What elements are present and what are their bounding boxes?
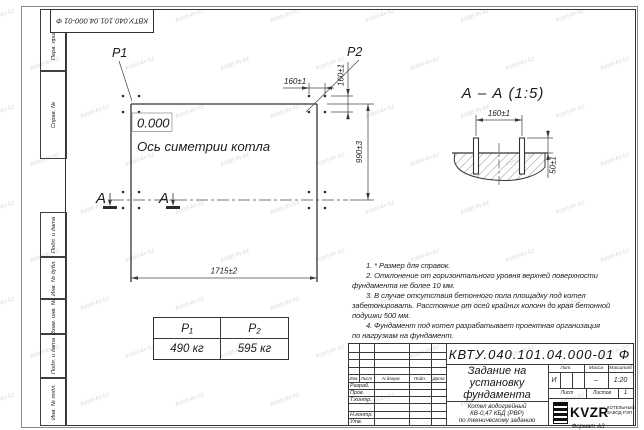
plan-load-p2-label: P2 [347,45,362,59]
lit-label: Лит. [548,364,584,372]
col-list: Лист [359,374,374,382]
note-line: фундамента не более 10 мм. [352,281,638,291]
section-dim-160: 160±1 [488,109,510,118]
col-data: Дата [431,374,446,382]
doc-subtitle: Котел водогрейный КВ-0,47 КБД (РВР) по т… [446,403,548,425]
doc-number: КВТУ.040.101.04.000-01 Ф [446,344,633,364]
scale-value: 1:20 [608,372,633,388]
doc-title: Задание на установку фундамента [446,365,548,401]
scale-label: Масштаб [608,364,633,372]
format-label: Формат А3 [543,424,633,430]
row-prov: Пров. [350,389,374,396]
sheets-label: Листов [586,388,618,398]
kvzr-logo-subtext: КОТЕЛЬНЫЙ ЗАВОД РЭП [607,405,633,415]
plan-load-p1-label: P1 [112,46,127,60]
load-table-header-p1: P₁ [154,318,220,338]
load-table-value-p1: 490 кг [154,339,220,359]
technical-notes: 1. * Размер для справок. 2. Отклонение о… [352,261,638,341]
plan-axis-label: Ось симетрии котла [137,139,270,154]
section-view [452,138,548,187]
kvzr-emblem-icon [553,402,568,424]
dim-160-side: 160±1 [337,64,346,86]
kvzr-logo-text: KVZR [570,401,606,423]
section-title: А – А (1:5) [461,85,545,102]
sheets-value: 1 [618,388,633,398]
anchor-bolt-left [474,138,479,174]
note-line: по нагрузкам на фундамент. [352,331,638,341]
load-table-header-p2: P₂ [221,318,288,338]
drawing-sheet: kotel-kv.kzkotel-kv.kzkotel-kv.kzkotel-k… [0,0,644,430]
load-table: P₁ P₂ 490 кг 595 кг [153,317,289,360]
dim-160-top: 160±1 [284,77,306,86]
note-line: 4. Фундамент под котел разрабатывает про… [352,321,638,331]
note-line: 2. Отклонение от горизонтального уровня … [352,271,638,281]
row-tkontr: Т.контр. [350,396,374,403]
section-dim-50: 50±1 [549,156,558,174]
note-line: 3. В случае отсутствия бетонного пола пл… [352,291,638,301]
mass-value: – [584,372,608,388]
dim-1715: 1715±2 [211,267,238,276]
lit-value: И [548,372,560,388]
row-razrab: Разраб. [350,382,374,389]
title-block: КВТУ.040.101.04.000-01 Ф Изм. Лист N док… [348,343,634,426]
concrete-pad [454,153,545,181]
plan-level-mark: 0.000 [137,116,170,131]
note-line: подушки 500 мм. [352,311,638,321]
anchor-bolt-right [520,138,525,174]
dim-990: 990±3 [355,140,364,163]
col-podp: Подп. [409,374,431,382]
load-table-value-p2: 595 кг [221,339,288,359]
col-izm: Изм. [349,374,359,382]
section-letter-right: А [158,190,169,207]
dimension-arrows [108,86,550,280]
row-utv: Утв. [350,418,374,425]
mass-label: Масса [584,364,608,372]
col-dokum: N докум. [374,374,409,382]
note-line: 1. * Размер для справок. [352,261,638,271]
section-letter-left: А [95,190,106,207]
sheet-label: Лист [548,388,586,398]
note-line: забетонировать. Расстояние от осей крайн… [352,301,638,311]
row-nkontr: Н.контр. [350,411,374,418]
